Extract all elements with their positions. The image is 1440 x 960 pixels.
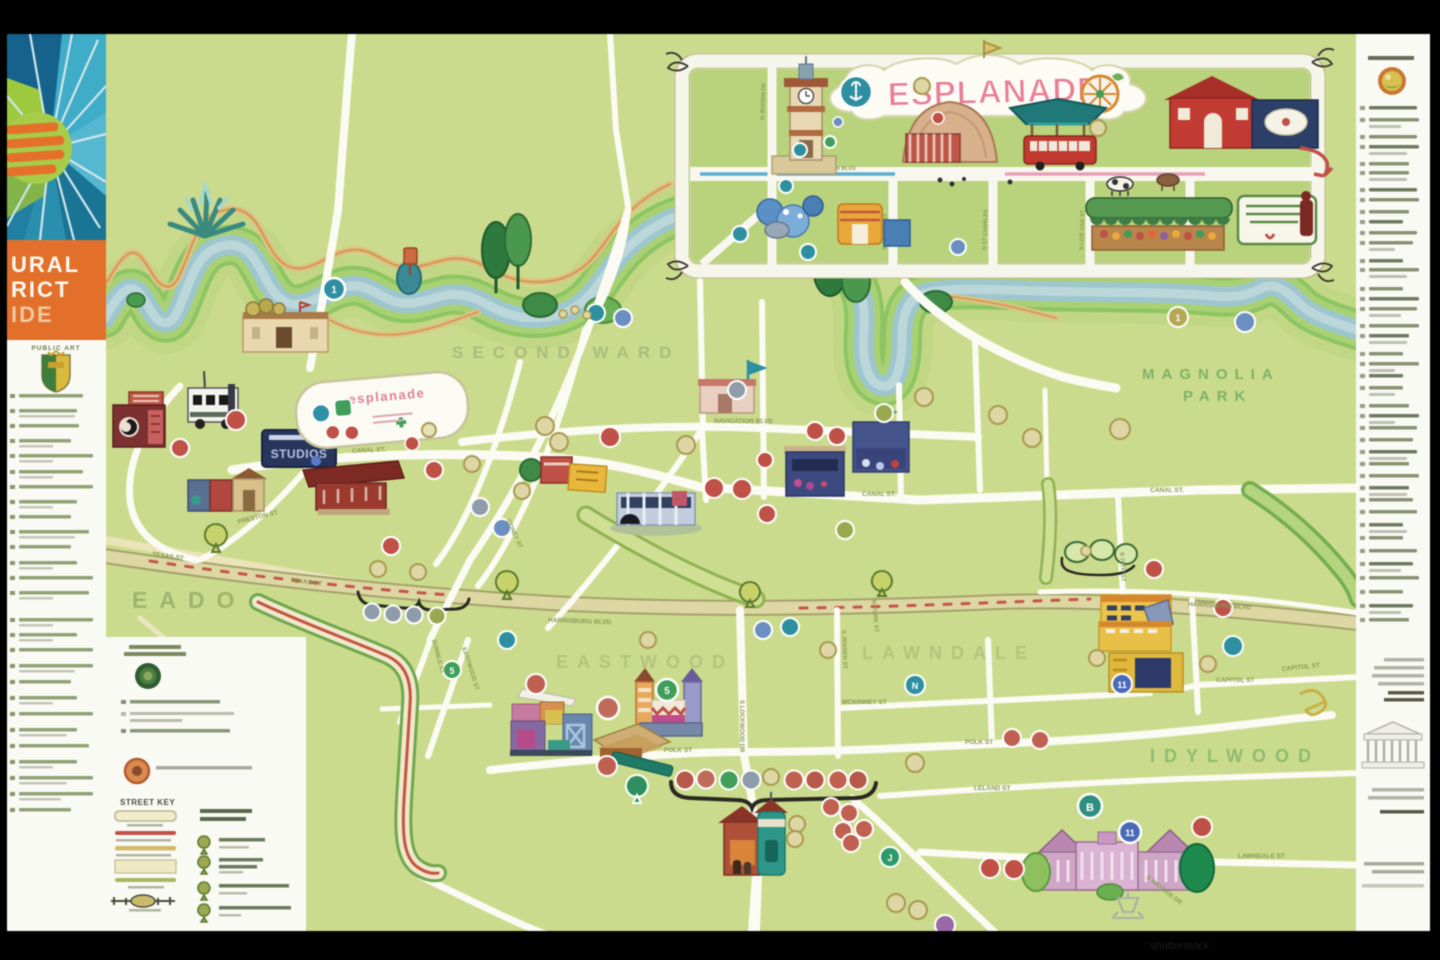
svg-text:1: 1 [1175, 313, 1180, 323]
svg-text:CAPITOL ST: CAPITOL ST [1216, 677, 1254, 684]
svg-text:1: 1 [331, 285, 337, 296]
svg-text:URAL: URAL [11, 252, 80, 277]
svg-text:EASTWOOD: EASTWOOD [556, 652, 734, 672]
svg-text:IDE: IDE [11, 302, 54, 327]
svg-text:shutterstock: shutterstock [1150, 940, 1210, 952]
svg-text:IDYLWOOD: IDYLWOOD [1150, 746, 1320, 766]
svg-text:EADO: EADO [132, 587, 246, 613]
svg-text:5: 5 [664, 686, 670, 697]
svg-text:LELAND ST: LELAND ST [974, 785, 1011, 792]
svg-text:CANAL ST.: CANAL ST. [1150, 487, 1184, 494]
svg-text:11: 11 [1125, 828, 1135, 838]
svg-text:RICT: RICT [11, 277, 70, 302]
svg-text:MCKINNEY ST: MCKINNEY ST [842, 699, 887, 706]
svg-text:MAGNOLIA: MAGNOLIA [1142, 366, 1280, 383]
svg-text:B: B [1086, 802, 1094, 814]
svg-text:PARK: PARK [1183, 388, 1252, 405]
svg-text:NAVIGATION BLVD: NAVIGATION BLVD [714, 418, 773, 425]
svg-text:SECOND WARD: SECOND WARD [452, 343, 680, 362]
svg-text:STREET KEY: STREET KEY [120, 798, 175, 807]
svg-text:J: J [887, 853, 892, 863]
svg-text:S LOCKWOOD DR: S LOCKWOOD DR [738, 700, 744, 753]
svg-text:LAWNDALE: LAWNDALE [862, 643, 1036, 663]
svg-text:CANAL ST.: CANAL ST. [862, 491, 896, 498]
svg-text:LAWNDALE ST: LAWNDALE ST [1238, 853, 1285, 860]
svg-text:N: N [912, 681, 919, 691]
svg-text:POLK ST: POLK ST [664, 747, 692, 754]
svg-text:POLK ST: POLK ST [965, 739, 993, 746]
svg-text:11: 11 [1117, 680, 1127, 690]
svg-text:5: 5 [449, 666, 454, 676]
